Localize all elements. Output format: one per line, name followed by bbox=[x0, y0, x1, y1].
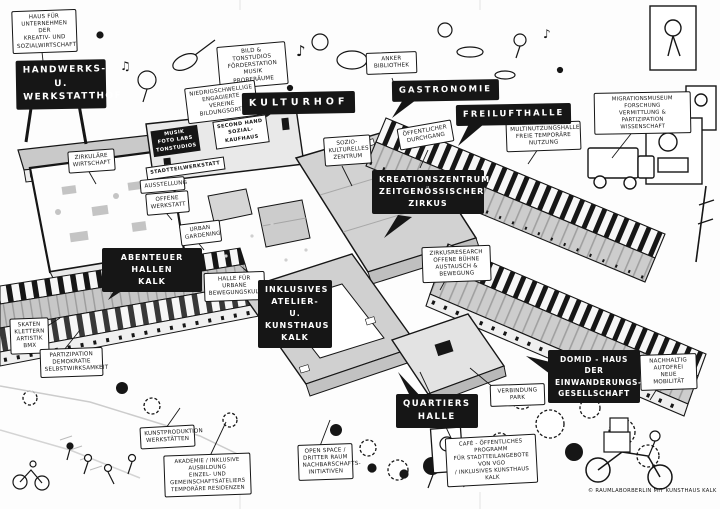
note-partizipation: PARTIZIPATION DEMOKRATIE SELBSTWIRKSAMKE… bbox=[40, 347, 104, 378]
note-open-space: OPEN SPACE / DRITTER RAUM NACHBARSCHAFTS… bbox=[297, 443, 353, 481]
note-cafe: CAFÉ - ÖFFENTLICHES PROGRAMM FÜR STADTTE… bbox=[445, 434, 538, 488]
label-kreationszentrum: KREATIONSZENTRUM ZEITGENÖSSISCHER ZIRKUS bbox=[372, 170, 484, 214]
svg-text:♪: ♪ bbox=[296, 42, 306, 60]
label-kulturhof: KULTURHOF bbox=[242, 91, 356, 115]
site-plan-poster: ♪ ♫ ♪ bbox=[0, 0, 720, 509]
note-zirkulaere-wirtschaft: ZIRKULÄRE WIRTSCHAFT bbox=[67, 148, 115, 173]
label-domid: DOMID - HAUS DER EINWANDERUNGS- GESELLSC… bbox=[548, 350, 640, 403]
label-abenteuer-hallen: ABENTEUER HALLEN KALK bbox=[102, 248, 202, 292]
note-offene-werkstatt: OFFENE WERKSTATT bbox=[145, 190, 190, 215]
label-gastronomie: GASTRONOMIE bbox=[392, 79, 499, 102]
note-halle-bewegungskultur: HALLE FÜR URBANE BEWEGUNGSKULTUR bbox=[204, 271, 266, 302]
credit-line: © RAUMLABORBERLIN MIT KUNSTHAUS KALK bbox=[588, 488, 717, 494]
note-kunstproduktion: KUNSTPRODUKTION WERKSTÄTTEN bbox=[139, 425, 195, 449]
note-akademie: AKADEMIE / INKLUSIVE AUSBILDUNG EINZEL- … bbox=[163, 452, 251, 497]
note-zirkusresearch: ZIRKUSRESEARCH OFFENE BÜHNE AUSTAUSCH & … bbox=[421, 245, 491, 283]
note-anker-bibliothek: ANKER BIBLIOTHEK bbox=[366, 51, 418, 74]
label-quartiershalle: QUARTIERS HALLE bbox=[396, 394, 478, 428]
label-inklusives-atelier: INKLUSIVES ATELIER- U. KUNSTHAUS KALK bbox=[258, 280, 332, 348]
note-nachhaltig: NACHHALTIG AUTOFREI NEUE MOBILITÄT bbox=[639, 353, 697, 391]
svg-text:♫: ♫ bbox=[120, 59, 131, 73]
label-freilufthalle: FREILUFTHALLE bbox=[456, 103, 572, 126]
note-verbindung-park: VERBINDUNG PARK bbox=[490, 383, 546, 406]
svg-text:♪: ♪ bbox=[543, 27, 551, 41]
note-multinutzungshalle: MULTINUTZUNGSHALLE FREIE TEMPORÄRE NUTZU… bbox=[506, 121, 582, 152]
note-haus-unternehmen: HAUS FÜR UNTERNEHMEN DER KREATIV- UND SO… bbox=[11, 9, 77, 55]
label-handwerkshof: HANDWERKS- U. WERKSTATTHOF bbox=[16, 59, 107, 109]
note-migrationsmuseum: MIGRATIONSMUSEUM FORSCHUNG VERMITTLUNG &… bbox=[594, 91, 692, 135]
note-sozio-kulturelles: SOZIO- KULTURELLES ZENTRUM bbox=[323, 134, 372, 166]
